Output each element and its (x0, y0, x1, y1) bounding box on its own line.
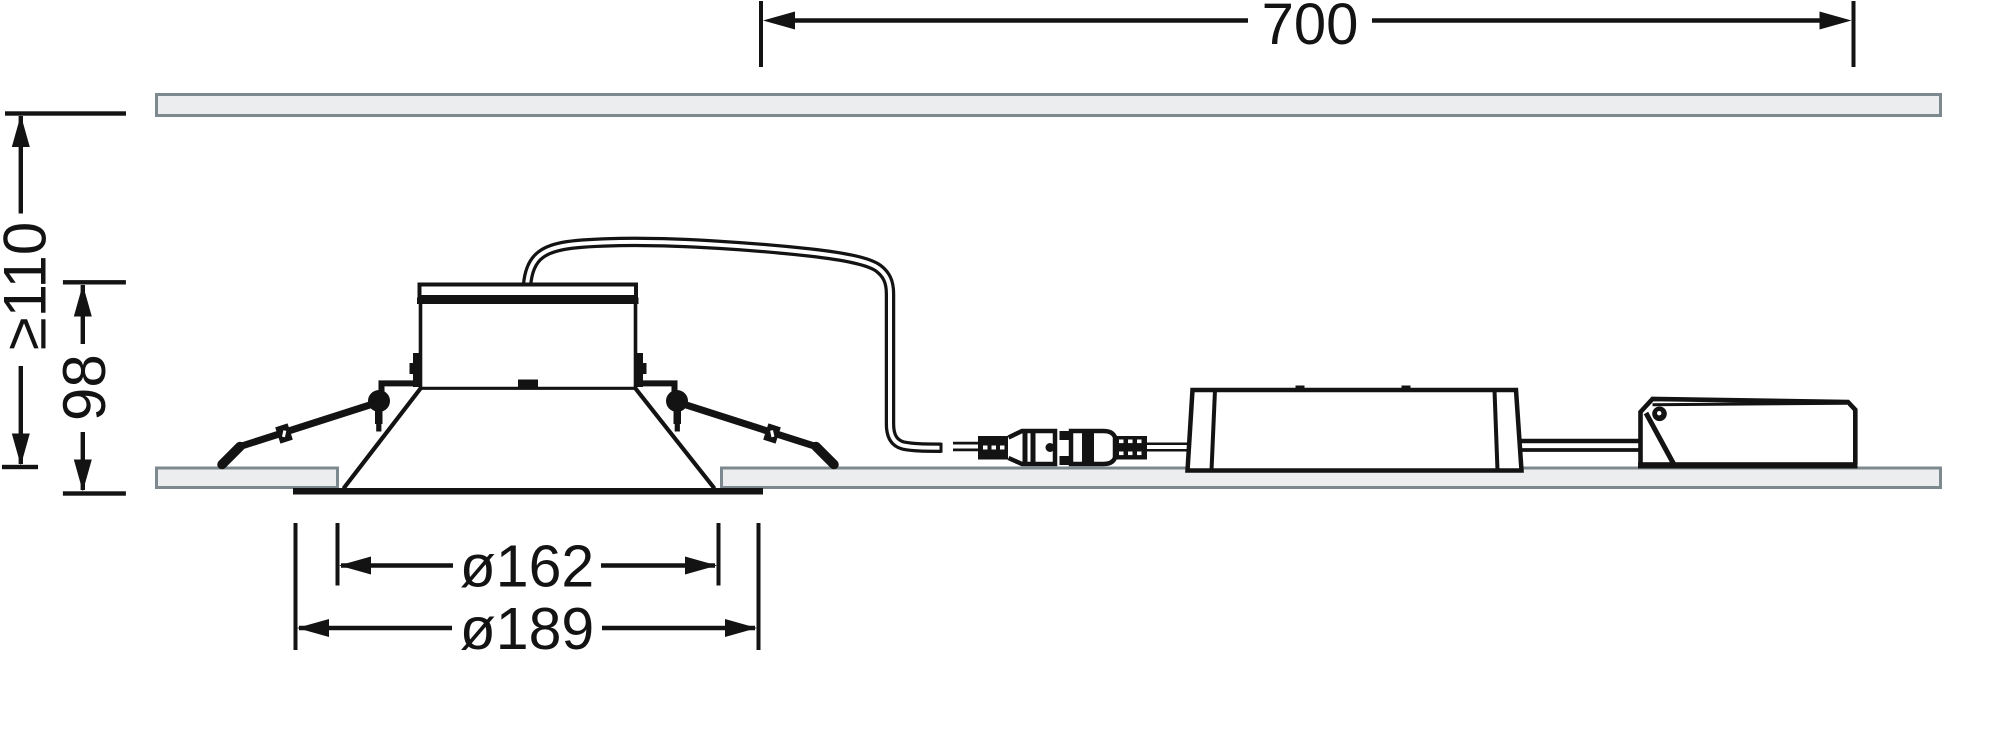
svg-text:ø162: ø162 (460, 534, 594, 600)
svg-text:700: 700 (1262, 0, 1359, 57)
svg-text:ø189: ø189 (460, 596, 594, 662)
svg-text:98: 98 (51, 354, 118, 421)
svg-text:≥110: ≥110 (0, 222, 59, 351)
